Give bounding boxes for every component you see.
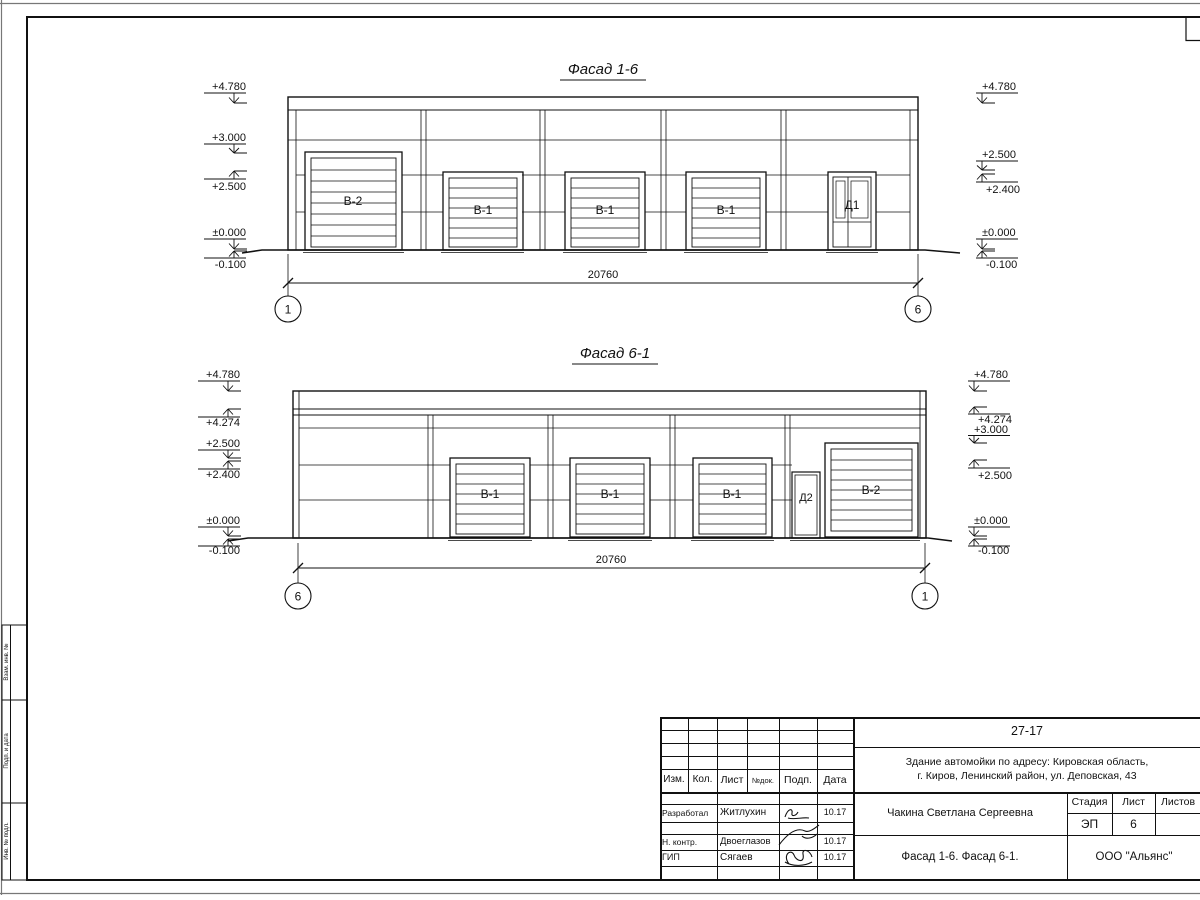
drawing-sheet: Взам. инв. № Подп. и дата Инв. № подл. Ф… (0, 0, 1200, 900)
door-label: В-2 (862, 483, 881, 497)
side-stamp-labels: Взам. инв. № Подп. и дата Инв. № подл. (3, 643, 10, 859)
staff-name: Сягаев (720, 850, 778, 866)
titleblock-doc-number: 27-17 (853, 717, 1200, 747)
staff-role: Н. контр. (662, 834, 716, 850)
facade-6-1-doors (450, 443, 918, 538)
elevation-mark-label: +4.274 (206, 417, 240, 429)
sheets-total-value (1155, 813, 1200, 835)
rev-header-ndok: №док. (747, 769, 779, 792)
door-label: В-2 (344, 194, 363, 208)
elevation-mark-label: +2.500 (212, 181, 246, 193)
elevation-mark-label: +2.500 (206, 438, 240, 450)
door-label: В-1 (717, 203, 736, 217)
door-label: В-1 (596, 203, 615, 217)
facade-1-6-title: Фасад 1-6 (560, 61, 646, 80)
facade-6-1-heading: Фасад 6-1 (580, 345, 650, 362)
elevation-mark-label: ±0.000 (974, 515, 1008, 527)
dimension-value: 20760 (588, 269, 619, 281)
facade-6-1-marks-left: +4.780 +4.274 +2.500 +2.400 ±0.000 -0.10… (198, 369, 241, 557)
staff-name: Житлухин (720, 804, 778, 822)
sheet-label: Лист (1112, 792, 1155, 813)
titleblock-line (660, 743, 853, 744)
rev-header-data: Дата (817, 769, 853, 792)
dimension-value: 20760 (596, 554, 627, 566)
elevation-mark-label: -0.100 (986, 259, 1017, 271)
facade-6-1-dimension: 20760 6 1 (285, 543, 938, 609)
signature-nkontr (775, 821, 821, 849)
door-label: В-1 (601, 487, 620, 501)
facade-6-1-building (228, 391, 952, 541)
rev-header-podp: Подп. (779, 769, 817, 792)
title-block: Изм. Кол. Лист №док. Подп. Дата Разработ… (660, 717, 1200, 880)
project-address-line1: Здание автомойки по адресу: Кировская об… (906, 756, 1149, 769)
elevation-mark-label: +3.000 (974, 424, 1008, 436)
facade-6-1-title: Фасад 6-1 (572, 345, 658, 364)
titleblock-drawing-name: Фасад 1-6. Фасад 6-1. (853, 835, 1067, 880)
stage-value: ЭП (1067, 813, 1112, 835)
facade-6-1-marks-right: +4.780 +4.274 +3.000 +2.500 ±0.000 -0.10… (968, 369, 1012, 557)
door-label: В-1 (481, 487, 500, 501)
sheet-number-value: 6 (1112, 813, 1155, 835)
staff-role: ГИП (662, 850, 716, 866)
facade-1-6-building (242, 97, 960, 253)
rev-header-list: Лист (717, 769, 747, 792)
axis-bubble-label: 1 (285, 303, 292, 317)
titleblock-line (660, 756, 853, 757)
elevation-mark-label: +2.400 (206, 469, 240, 481)
elevation-mark-label: +3.000 (212, 132, 246, 144)
titleblock-line (660, 866, 853, 867)
elevation-mark-label: +4.780 (206, 369, 240, 381)
door-label: В-1 (723, 487, 742, 501)
signature-gip (779, 846, 817, 868)
door-label: Д2 (799, 492, 813, 504)
rev-header-kol: Кол. (688, 769, 717, 792)
titleblock-line (660, 730, 853, 731)
elevation-mark-label: -0.100 (978, 545, 1009, 557)
staff-role: Разработал (662, 804, 716, 822)
stamp-label: Подп. и дата (4, 733, 10, 769)
elevation-mark-label: -0.100 (215, 259, 246, 271)
axis-bubble-label: 1 (922, 590, 929, 604)
elevation-mark-label: +2.400 (986, 184, 1020, 196)
staff-name: Двоеглазов (720, 834, 778, 850)
stamp-label: Взам. инв. № (3, 643, 10, 680)
staff-date: 10.17 (817, 850, 853, 866)
sheets-label: Листов (1155, 792, 1200, 813)
elevation-mark-label: ±0.000 (212, 227, 246, 239)
elevation-mark-label: +4.780 (974, 369, 1008, 381)
rev-header-izm: Изм. (660, 769, 688, 792)
elevation-mark-label: +4.780 (982, 81, 1016, 93)
stage-label: Стадия (1067, 792, 1112, 813)
elevation-mark-label: ±0.000 (982, 227, 1016, 239)
project-address-line2: г. Киров, Ленинский район, ул. Деповская… (917, 770, 1136, 783)
titleblock-customer: Чакина Светлана Сергеевна (853, 792, 1067, 835)
elevation-mark-label: +2.500 (982, 149, 1016, 161)
elevation-mark-label: ±0.000 (206, 515, 240, 527)
signature-razrabotal (779, 805, 817, 821)
staff-date: 10.17 (817, 834, 853, 850)
door-label: Д1 (845, 198, 860, 212)
facade-6-1-door-labels: В-1 В-1 В-1 Д2 В-2 (481, 483, 881, 504)
titleblock-company: ООО "Альянс" (1067, 835, 1200, 880)
elevation-mark-label: +2.500 (978, 470, 1012, 482)
facade-1-6-marks-right: +4.780 +2.500 +2.400 ±0.000 -0.100 (976, 81, 1020, 271)
top-right-code-box (1186, 17, 1200, 41)
titleblock-line (660, 822, 853, 823)
axis-bubble-label: 6 (915, 303, 922, 317)
staff-date: 10.17 (817, 804, 853, 822)
titleblock-project-address: Здание автомойки по адресу: Кировская об… (853, 747, 1200, 792)
door-label: В-1 (474, 203, 493, 217)
titleblock-line (717, 717, 718, 880)
axis-bubble-label: 6 (295, 590, 302, 604)
facade-1-6-heading: Фасад 1-6 (568, 61, 639, 78)
facade-1-6-marks-left: +4.780 +3.000 +2.500 ±0.000 -0.100 (204, 81, 247, 271)
facade-1-6-dimension: 20760 1 6 (275, 254, 931, 322)
elevation-mark-label: +4.780 (212, 81, 246, 93)
stamp-label: Инв. № подл. (3, 822, 10, 860)
facade-1-6-doors (305, 152, 876, 250)
elevation-mark-label: -0.100 (209, 545, 240, 557)
